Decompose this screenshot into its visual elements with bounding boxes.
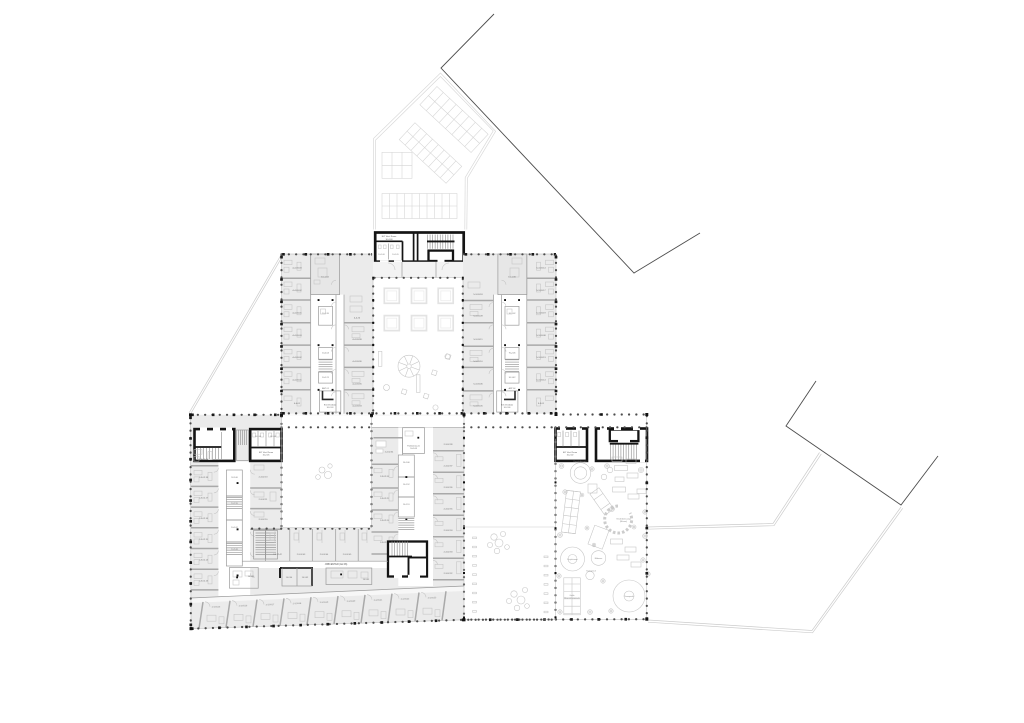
svg-text:2-3.02.44: 2-3.02.44 bbox=[320, 554, 329, 556]
svg-text:Kreativbereich: Kreativbereich bbox=[574, 460, 587, 463]
svg-text:2-3.02.13: 2-3.02.13 bbox=[199, 580, 209, 582]
svg-text:Teamsprech: Teamsprech bbox=[586, 571, 596, 573]
svg-text:2-3.02.33: 2-3.02.33 bbox=[444, 552, 454, 554]
svg-text:5-3.03.09: 5-3.03.09 bbox=[473, 316, 483, 318]
svg-text:4-4.03.03: 4-4.03.03 bbox=[292, 335, 302, 337]
svg-text:5-3.03.19: 5-3.03.19 bbox=[536, 313, 546, 315]
svg-text:5-3.03.13: 5-3.03.13 bbox=[536, 357, 546, 359]
svg-text:2-3.02.35: 2-3.02.35 bbox=[444, 509, 454, 511]
svg-text:70-2.06: 70-2.06 bbox=[509, 353, 517, 355]
svg-text:Projektraum: Projektraum bbox=[567, 558, 578, 561]
svg-text:2-3.03.16: 2-3.03.16 bbox=[239, 605, 248, 607]
svg-text:2-3.02.18: 2-3.02.18 bbox=[199, 477, 209, 479]
svg-text:10-1.04: 10-1.04 bbox=[321, 277, 329, 279]
svg-text:E04 Vestibule: E04 Vestibule bbox=[324, 404, 337, 407]
svg-text:Funktionsraum: Funktionsraum bbox=[407, 445, 420, 448]
svg-text:10-1.42: 10-1.42 bbox=[509, 377, 517, 379]
svg-text:JOBCENTER (Aid 06): JOBCENTER (Aid 06) bbox=[325, 563, 348, 566]
svg-text:2-3.03.21: 2-3.03.21 bbox=[374, 599, 383, 601]
svg-text:4-4.03.36: 4-4.03.36 bbox=[352, 361, 362, 363]
svg-text:2-3.02.15: 2-3.02.15 bbox=[199, 539, 209, 541]
svg-text:4-4.03.35: 4-4.03.35 bbox=[352, 384, 362, 386]
svg-text:2-3.02.14: 2-3.02.14 bbox=[199, 560, 209, 562]
svg-text:Teampunkt: Teampunkt bbox=[624, 595, 634, 598]
svg-text:5-3.03.18: 5-3.03.18 bbox=[473, 294, 483, 296]
svg-text:2-3.03.15: 2-3.03.15 bbox=[212, 606, 221, 608]
svg-text:5-3.03.06: 5-3.03.06 bbox=[473, 384, 483, 386]
svg-text:ELT Vert. Raum: ELT Vert. Raum bbox=[563, 451, 577, 454]
svg-text:5-3.03.10: 5-3.03.10 bbox=[473, 361, 483, 363]
svg-text:5-3.03.14: 5-3.03.14 bbox=[536, 380, 546, 382]
svg-text:ELT Vert. Raum: ELT Vert. Raum bbox=[259, 451, 273, 454]
svg-text:10-1.52: 10-1.52 bbox=[403, 484, 409, 486]
svg-text:2-3.02.37: 2-3.02.37 bbox=[444, 466, 454, 468]
svg-text:10-1.08: 10-1.08 bbox=[410, 448, 416, 450]
svg-text:5-3.01: 5-3.01 bbox=[538, 403, 545, 405]
svg-text:E05 Vestibule: E05 Vestibule bbox=[501, 404, 514, 407]
svg-text:2-3.02.11: 2-3.02.11 bbox=[259, 499, 268, 501]
svg-text:10-1.06: 10-1.06 bbox=[255, 436, 261, 438]
svg-text:2-3.02.16: 2-3.02.16 bbox=[199, 518, 209, 520]
svg-text:Besprechungsraum: Besprechungsraum bbox=[564, 598, 580, 600]
svg-text:10-1.06: 10-1.06 bbox=[508, 277, 516, 279]
svg-text:4-4.03.03: 4-4.03.03 bbox=[292, 268, 302, 270]
svg-text:4-4.03.33: 4-4.03.33 bbox=[352, 406, 362, 408]
svg-text:2-3.03.22: 2-3.03.22 bbox=[401, 598, 410, 600]
svg-text:2-3.02.17: 2-3.02.17 bbox=[199, 498, 209, 500]
svg-text:2-3.02.36: 2-3.02.36 bbox=[444, 487, 454, 489]
svg-text:2-3.03.17: 2-3.03.17 bbox=[266, 604, 275, 606]
svg-text:4-4.03.01: 4-4.03.01 bbox=[292, 380, 302, 382]
svg-text:10.4.03: 10.4.03 bbox=[386, 239, 394, 241]
svg-text:10-1.08: 10-1.08 bbox=[270, 436, 276, 438]
svg-text:5-3.03.17: 5-3.03.17 bbox=[536, 290, 546, 292]
svg-text:50-1.06: 50-1.06 bbox=[403, 462, 409, 464]
svg-text:10-1.62: 10-1.62 bbox=[363, 579, 369, 581]
svg-text:ANT 04: ANT 04 bbox=[509, 387, 517, 390]
svg-text:2-3.02.43: 2-3.02.43 bbox=[297, 554, 306, 556]
svg-text:2-3.03.18: 2-3.03.18 bbox=[293, 603, 302, 605]
svg-text:2-3.02.10: 2-3.02.10 bbox=[259, 519, 269, 521]
svg-text:10.2.02: 10.2.02 bbox=[567, 455, 575, 457]
svg-text:2-3.03.23: 2-3.03.23 bbox=[428, 597, 437, 599]
svg-text:5-3.03.11: 5-3.03.11 bbox=[473, 339, 483, 341]
svg-text:ANT 01: ANT 01 bbox=[322, 387, 330, 390]
svg-text:4-4.03.02: 4-4.03.02 bbox=[292, 357, 302, 359]
svg-text:2-3.02.19: 2-3.02.19 bbox=[199, 459, 209, 461]
svg-text:2-3.02.24: 2-3.02.24 bbox=[380, 520, 390, 522]
svg-text:2-3.02.13: 2-3.02.13 bbox=[259, 477, 269, 479]
svg-text:10-2.64: 10-2.64 bbox=[286, 577, 292, 579]
svg-text:10-1.21: 10-1.21 bbox=[322, 377, 330, 379]
svg-text:4-4.01: 4-4.01 bbox=[294, 403, 301, 405]
svg-text:4-4.03.01: 4-4.03.01 bbox=[292, 313, 302, 315]
svg-text:2-3.02.34: 2-3.02.34 bbox=[444, 530, 454, 532]
svg-text:10-2.06: 10-2.06 bbox=[504, 407, 512, 409]
svg-text:10-1.51: 10-1.51 bbox=[403, 504, 409, 506]
svg-text:2-3.02.26: 2-3.02.26 bbox=[380, 476, 390, 478]
svg-text:5-3.03.14: 5-3.03.14 bbox=[536, 268, 546, 270]
svg-text:2-3.02.38: 2-3.02.38 bbox=[444, 444, 454, 446]
svg-text:10-2.03: 10-2.03 bbox=[327, 407, 335, 409]
svg-text:(Mäuse): (Mäuse) bbox=[620, 521, 627, 523]
svg-text:10.2.05: 10.2.05 bbox=[263, 455, 271, 457]
svg-text:52-1.06: 52-1.06 bbox=[231, 477, 237, 479]
svg-text:2-3.02.34: 2-3.02.34 bbox=[385, 452, 394, 454]
svg-text:Bildraum: Bildraum bbox=[595, 557, 603, 560]
svg-text:4-4.03.02: 4-4.03.02 bbox=[292, 290, 302, 292]
svg-text:4-4.03.38: 4-4.03.38 bbox=[352, 339, 362, 341]
svg-text:ELT Vert. Raum: ELT Vert. Raum bbox=[382, 235, 397, 238]
svg-text:10-1.62: 10-1.62 bbox=[302, 577, 308, 579]
svg-text:2-3.03.19: 2-3.03.19 bbox=[320, 602, 329, 604]
svg-text:5-3.03.08: 5-3.03.08 bbox=[536, 335, 546, 337]
svg-text:2-3.02.32: 2-3.02.32 bbox=[444, 573, 454, 575]
svg-text:2-3.02.45: 2-3.02.45 bbox=[343, 554, 352, 556]
svg-text:10-1.06: 10-1.06 bbox=[378, 254, 384, 256]
svg-text:10-1.05: 10-1.05 bbox=[392, 254, 398, 256]
svg-text:10-2.04: 10-2.04 bbox=[322, 353, 330, 355]
svg-text:2-3.03.20: 2-3.03.20 bbox=[347, 601, 356, 603]
svg-text:5-3.03.05: 5-3.03.05 bbox=[473, 406, 483, 408]
svg-text:10-1.60: 10-1.60 bbox=[248, 576, 254, 578]
svg-text:2-3.02.42: 2-3.02.42 bbox=[273, 554, 282, 556]
svg-text:2-3.02.25: 2-3.02.25 bbox=[380, 498, 390, 500]
svg-text:4-4.20: 4-4.20 bbox=[354, 318, 361, 320]
